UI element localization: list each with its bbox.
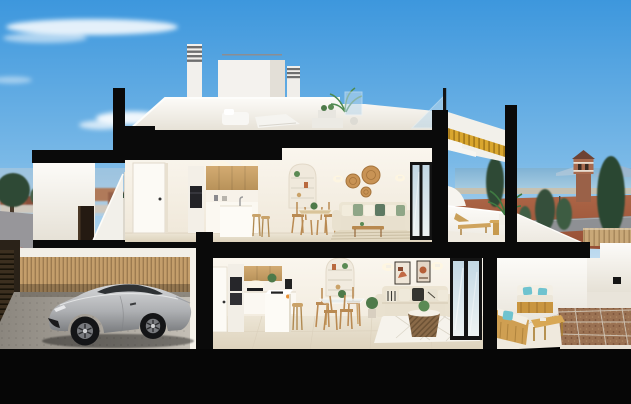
upper-arch-niche (289, 164, 316, 208)
ground-floor-interior (210, 258, 483, 350)
car-shadow (42, 334, 194, 348)
architectural-cross-section-render (0, 0, 631, 404)
upper-arch-shape (289, 164, 316, 208)
roof-pot (350, 117, 358, 125)
pillow-charcoal (412, 288, 424, 301)
upper-sliding-doors (410, 162, 432, 240)
u-pillow-sage-1 (353, 204, 363, 216)
table-deco (540, 318, 546, 321)
art-frame-1 (395, 262, 410, 284)
upper-arch-vase (304, 182, 308, 188)
ground-arch-niche (326, 258, 354, 296)
cloud-streak-2 (3, 33, 87, 43)
oven-upper (230, 277, 242, 291)
tower-band-1 (574, 162, 594, 164)
gravel-patio (558, 308, 631, 347)
upper-chair-seat-1 (292, 214, 304, 217)
planter-green-1 (321, 105, 327, 111)
wall-sconce-1 (386, 265, 391, 268)
cooktop (247, 288, 263, 291)
tower-band-2 (574, 170, 594, 172)
neighbor-door-notch (613, 277, 621, 284)
upper-sconce-1 (336, 177, 341, 180)
upper-floor-interior (125, 148, 432, 242)
table-plant-small (360, 222, 364, 226)
planter-green-2 (328, 104, 334, 110)
u-pillow-sage-2 (396, 205, 405, 216)
conifer-1 (486, 157, 504, 207)
arch-vase (332, 264, 336, 270)
outdoor-sofa-seat (517, 295, 553, 303)
side-table-body (493, 223, 499, 235)
kettle (214, 195, 218, 201)
island-hob (271, 292, 283, 294)
teal-pillow-3 (502, 310, 513, 320)
ground-door-handle (223, 301, 226, 304)
table-books (368, 223, 374, 225)
upper-arch-plant (294, 171, 300, 177)
chimney-2-louvers (287, 68, 300, 78)
upper-oven (190, 186, 202, 208)
tower-opening-1 (578, 164, 582, 170)
conifer-3 (556, 198, 572, 230)
upper-centerpiece (310, 202, 317, 209)
garage-lintel-white (20, 248, 190, 257)
outdoor-sofa-frame (517, 302, 553, 313)
mid-floor-slab-cut (210, 242, 590, 258)
wall-sconce-2 (435, 264, 440, 267)
u-pillow-1 (342, 205, 352, 216)
right-column-a-cut (432, 110, 448, 258)
upper-table-top (298, 210, 332, 214)
pillow-cream-2 (438, 290, 448, 301)
ground-door (211, 267, 227, 332)
kitchen-stool (292, 303, 303, 330)
car-rear-wheel (140, 313, 166, 339)
glass-table-top (320, 299, 364, 303)
arch-bowl (336, 285, 341, 290)
upper-sofa-arm-left (332, 210, 341, 231)
upper-backsplash (206, 190, 258, 202)
roof-table (312, 118, 343, 128)
cloud-streak (6, 19, 178, 35)
teal-pillow-1 (523, 286, 533, 295)
upper-glass-2 (423, 165, 430, 236)
conifer-4 (597, 156, 625, 236)
counter-plant (268, 274, 277, 283)
ceiling-glow-2 (240, 159, 260, 167)
u-pillow-2 (364, 205, 374, 216)
oven-lower (230, 293, 242, 305)
doorway-jamb (78, 206, 81, 241)
u-pillow-3 (386, 205, 396, 216)
foundation-cut (0, 349, 631, 404)
pillow-cream-1 (399, 289, 410, 301)
upper-kitchen (188, 166, 270, 237)
basket-plant (419, 301, 430, 312)
upper-arch-bowl (297, 193, 301, 197)
right-column-b-cut (505, 105, 517, 252)
roof-railing (222, 54, 282, 56)
chair-seat-3 (324, 310, 337, 313)
small-appliance (222, 196, 227, 201)
u-pillow-green (375, 204, 385, 216)
roof-planter (318, 110, 336, 118)
terrace-divider-cut (483, 242, 497, 352)
door-shadow (165, 163, 168, 233)
arch-plant (342, 263, 348, 269)
render-canvas (0, 0, 631, 404)
island (265, 294, 289, 332)
tower-opening-2 (585, 164, 589, 170)
basket-body (408, 313, 440, 337)
island-side-shade (289, 294, 291, 332)
upper-door-handle (159, 198, 162, 201)
art-frame-2 (417, 261, 430, 282)
garage (0, 240, 200, 350)
roof-sofa-cushion (224, 109, 234, 115)
coffee-machine (285, 279, 292, 289)
glass-post (443, 88, 446, 112)
outdoor-sofa-back-cushion (517, 285, 553, 296)
neighbor-lower-wall (587, 292, 631, 308)
ground-sliding-doors (450, 258, 482, 340)
glass-balustrade (345, 92, 362, 115)
chair-seat-4 (340, 309, 353, 312)
car-front-wheel (71, 317, 100, 346)
upper-sconce-2 (398, 176, 403, 179)
upper-island (220, 206, 252, 237)
